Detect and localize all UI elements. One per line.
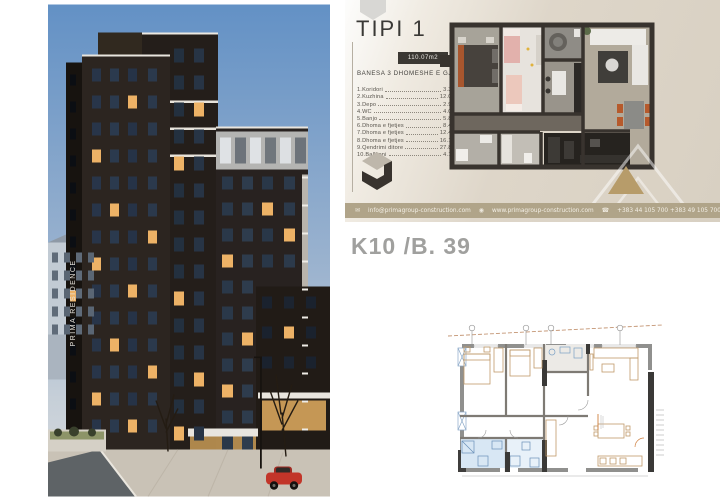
dotted-leader — [385, 91, 441, 92]
contact-website: www.primagroup-construction.com — [492, 208, 594, 214]
email-icon: ✉ — [355, 207, 360, 214]
tipi-card: TIPI 1 110.07m2 BANESA 3 DHOMESHE E GJYS… — [345, 0, 720, 222]
highlighted-bathrooms — [461, 439, 543, 468]
brochure-page: PRIMA RESIDENCE — [0, 0, 720, 497]
contact-phones: +383 44 105 700 +383 49 105 700 — [617, 208, 720, 214]
contact-strip: ✉ info@primagroup-construction.com ◉ www… — [345, 203, 720, 218]
building-render-image: PRIMA RESIDENCE — [48, 4, 330, 497]
dotted-leader — [378, 105, 441, 106]
vertical-divider — [352, 42, 353, 192]
contact-email: info@primagroup-construction.com — [368, 208, 471, 214]
dotted-leader — [386, 98, 438, 99]
dotted-leader — [389, 155, 442, 156]
floorplan-3d-render — [440, 9, 668, 192]
dotted-leader — [405, 148, 438, 149]
building-vertical-sign: PRIMA RESIDENCE — [70, 259, 77, 346]
globe-icon: ◉ — [479, 207, 484, 214]
phone-icon: ☎ — [602, 207, 609, 214]
floorplan-cad-drawing — [448, 320, 668, 482]
unit-label: K10 /B. 39 — [351, 233, 471, 260]
planter — [48, 427, 106, 452]
dotted-leader — [406, 127, 441, 128]
company-logo — [362, 152, 392, 192]
card-title: TIPI 1 — [356, 16, 427, 42]
penthouse — [216, 132, 308, 170]
dotted-leader — [406, 141, 438, 142]
dotted-leader — [379, 119, 441, 120]
dotted-leader — [406, 134, 438, 135]
dotted-leader — [374, 112, 441, 113]
